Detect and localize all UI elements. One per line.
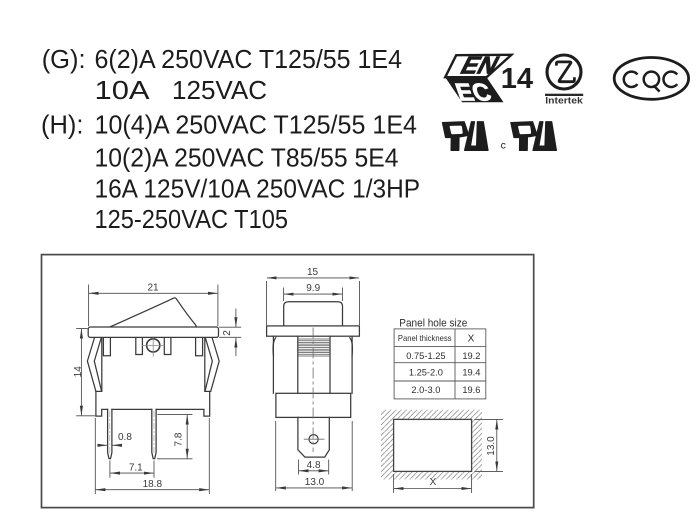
- svg-text:Panel thickness: Panel thickness: [398, 333, 452, 343]
- svg-text:0.8: 0.8: [118, 432, 132, 443]
- svg-text:4.8: 4.8: [307, 460, 321, 471]
- svg-text:21: 21: [147, 283, 159, 294]
- svg-text:c: c: [501, 139, 506, 151]
- svg-text:X: X: [430, 477, 437, 488]
- svg-text:Panel hole size: Panel hole size: [399, 317, 467, 329]
- svg-text:9.9: 9.9: [306, 283, 320, 294]
- svg-text:(G):: (G):: [42, 46, 86, 74]
- svg-text:7.1: 7.1: [129, 463, 143, 474]
- svg-text:0.75-1.25: 0.75-1.25: [406, 351, 445, 361]
- svg-text:13.0: 13.0: [486, 436, 497, 456]
- svg-text:18.8: 18.8: [143, 479, 163, 490]
- svg-text:13.0: 13.0: [305, 477, 325, 488]
- svg-text:125VAC: 125VAC: [172, 77, 267, 105]
- svg-text:2: 2: [222, 330, 233, 336]
- svg-text:125-250VAC T105: 125-250VAC T105: [95, 206, 289, 234]
- svg-text:10(2)A 250VAC T85/55 5E4: 10(2)A 250VAC T85/55 5E4: [95, 144, 399, 172]
- svg-text:19.4: 19.4: [462, 368, 480, 378]
- svg-text:X: X: [468, 333, 475, 344]
- svg-text:14: 14: [501, 63, 533, 95]
- svg-text:7.8: 7.8: [174, 432, 185, 446]
- svg-text:(H):: (H):: [41, 112, 83, 140]
- svg-text:19.2: 19.2: [462, 351, 480, 361]
- svg-text:10(4)A 250VAC T125/55 1E4: 10(4)A 250VAC T125/55 1E4: [95, 112, 418, 140]
- svg-text:2.0-3.0: 2.0-3.0: [411, 385, 440, 395]
- svg-text:6(2)A 250VAC T125/55 1E4: 6(2)A 250VAC T125/55 1E4: [95, 46, 403, 74]
- svg-text:Intertek: Intertek: [545, 95, 583, 105]
- svg-text:1.25-2.0: 1.25-2.0: [409, 368, 443, 378]
- svg-text:16A 125V/10A 250VAC 1/3HP: 16A 125V/10A 250VAC 1/3HP: [95, 176, 421, 204]
- svg-text:10A: 10A: [95, 77, 150, 105]
- svg-text:15: 15: [307, 267, 319, 278]
- svg-text:14: 14: [73, 366, 84, 378]
- svg-text:19.6: 19.6: [462, 385, 480, 395]
